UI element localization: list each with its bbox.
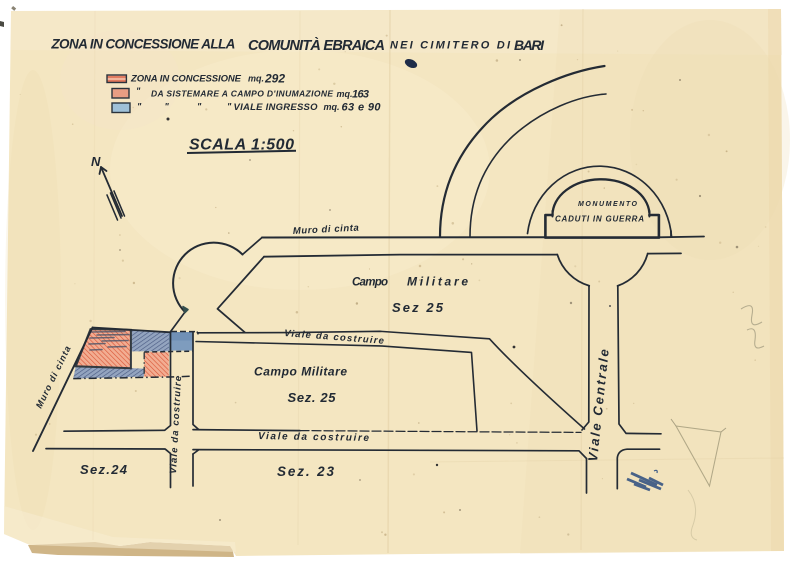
svg-text:": ": [137, 102, 142, 112]
svg-text:Sez. 23: Sez. 23: [277, 464, 334, 479]
svg-text:Sez. 25: Sez. 25: [288, 390, 337, 405]
svg-text:292: 292: [264, 72, 285, 86]
svg-text:ZONA IN CONCESSIONE: ZONA IN CONCESSIONE: [130, 74, 242, 85]
svg-text:COMUNITÀ EBRAICA: COMUNITÀ EBRAICA: [248, 37, 385, 54]
svg-text:mq.: mq.: [337, 89, 353, 99]
svg-text:Viale da costruire: Viale da costruire: [258, 431, 370, 444]
svg-text:CADUTI IN GUERRA: CADUTI IN GUERRA: [555, 215, 644, 224]
svg-text:DA SISTEMARE A CAMPO D'INUMAZI: DA SISTEMARE A CAMPO D'INUMAZIONE: [151, 89, 333, 99]
svg-text:ZONA IN CONCESSIONE ALLA: ZONA IN CONCESSIONE ALLA: [50, 37, 235, 52]
svg-text:mq.: mq.: [324, 102, 340, 112]
svg-text:": ": [165, 102, 170, 112]
svg-text:MONUMENTO: MONUMENTO: [578, 201, 638, 208]
svg-text:mq.: mq.: [248, 74, 264, 84]
svg-text:63 e 90: 63 e 90: [342, 102, 382, 114]
svg-text:VIALE INGRESSO: VIALE INGRESSO: [234, 102, 319, 113]
svg-text:163: 163: [352, 89, 369, 101]
svg-text:Campo: Campo: [352, 277, 388, 289]
svg-text:Sez.24: Sez.24: [80, 462, 128, 477]
svg-text:": ": [227, 102, 232, 112]
svg-text:Campo Militare: Campo Militare: [254, 365, 347, 379]
svg-text:BARI: BARI: [514, 37, 545, 53]
svg-text:": ": [197, 102, 202, 112]
svg-text:N: N: [91, 154, 101, 169]
svg-text:Sez 25: Sez 25: [392, 300, 444, 315]
svg-text:": ": [136, 86, 141, 96]
